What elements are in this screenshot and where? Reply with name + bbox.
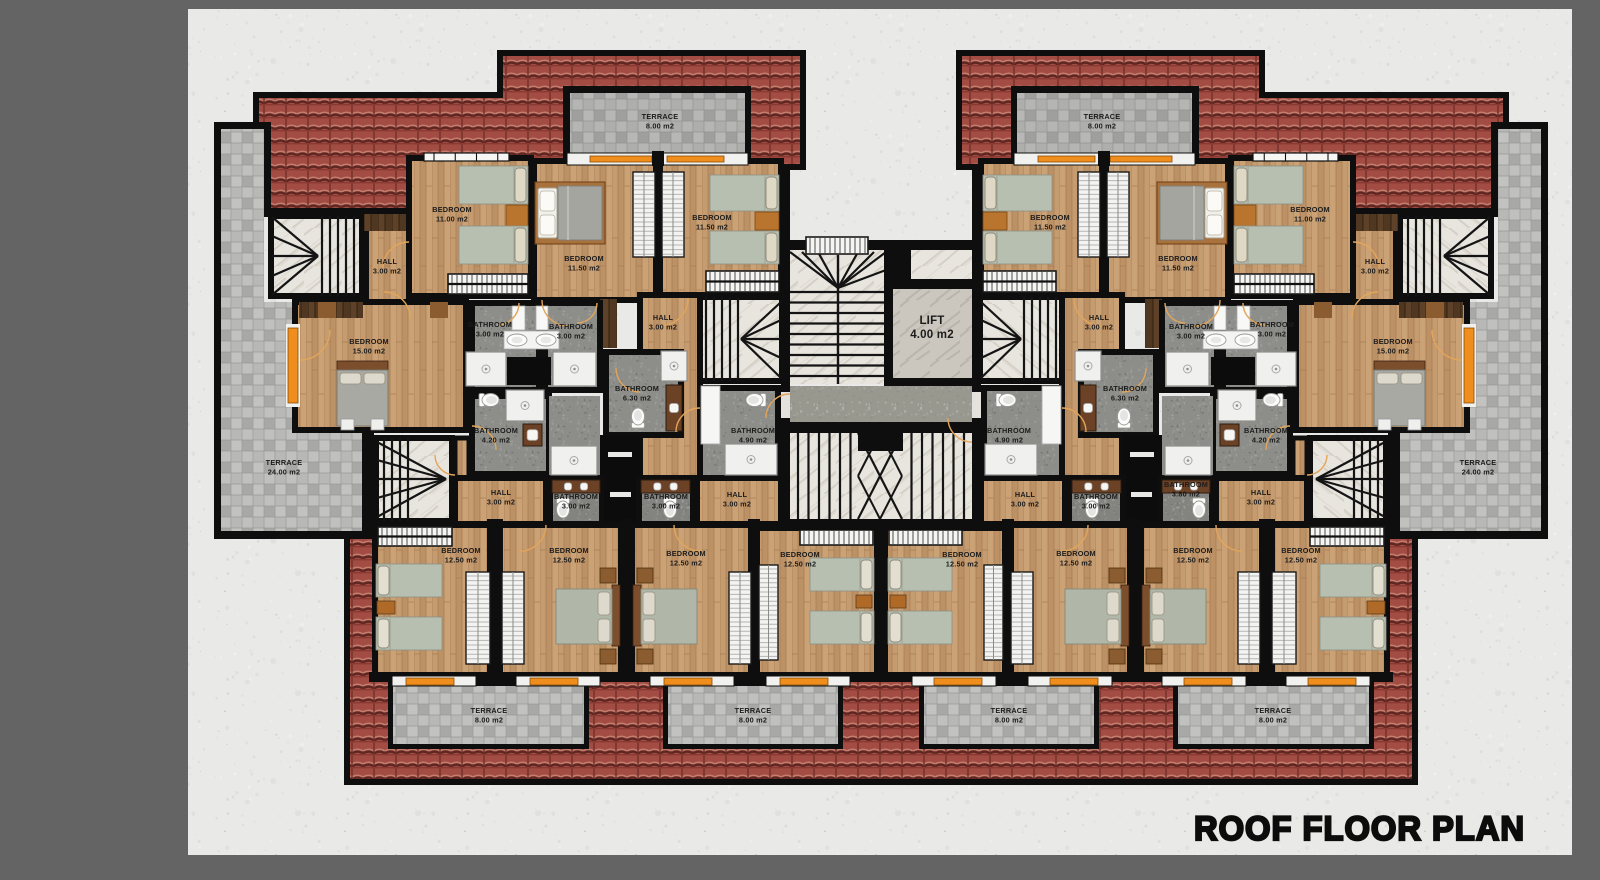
svg-text:HALL: HALL — [1251, 488, 1272, 497]
svg-text:12.50 m2: 12.50 m2 — [946, 560, 978, 569]
svg-text:TERRACE: TERRACE — [642, 112, 679, 121]
svg-text:HALL: HALL — [1015, 490, 1036, 499]
svg-text:ROOF FLOOR PLAN: ROOF FLOOR PLAN — [1194, 810, 1525, 848]
svg-text:BEDROOM: BEDROOM — [1373, 337, 1413, 346]
svg-text:3.00 m2: 3.00 m2 — [1247, 498, 1275, 507]
svg-text:TERRACE: TERRACE — [266, 458, 303, 467]
svg-text:15.00 m2: 15.00 m2 — [1377, 347, 1409, 356]
svg-text:BEDROOM: BEDROOM — [1030, 213, 1070, 222]
svg-text:3.00 m2: 3.00 m2 — [1361, 267, 1389, 276]
svg-text:TERRACE: TERRACE — [1255, 706, 1292, 715]
svg-text:3.00 m2: 3.00 m2 — [1011, 500, 1039, 509]
svg-text:BATHROOM: BATHROOM — [987, 426, 1031, 435]
svg-text:12.50 m2: 12.50 m2 — [1285, 556, 1317, 565]
svg-text:BATHROOM: BATHROOM — [1074, 492, 1118, 501]
svg-text:4.90 m2: 4.90 m2 — [995, 436, 1023, 445]
svg-text:HALL: HALL — [1089, 313, 1110, 322]
svg-text:11.50 m2: 11.50 m2 — [568, 264, 600, 273]
svg-text:11.00 m2: 11.00 m2 — [1294, 215, 1326, 224]
svg-text:BEDROOM: BEDROOM — [564, 254, 604, 263]
svg-text:HALL: HALL — [491, 488, 512, 497]
svg-text:BATHROOM: BATHROOM — [1164, 480, 1208, 489]
svg-text:BEDROOM: BEDROOM — [349, 337, 389, 346]
svg-text:8.00 m2: 8.00 m2 — [475, 716, 503, 725]
svg-text:11.50 m2: 11.50 m2 — [696, 223, 728, 232]
svg-text:6.30 m2: 6.30 m2 — [623, 394, 651, 403]
svg-text:3.00 m2: 3.00 m2 — [723, 500, 751, 509]
svg-text:BEDROOM: BEDROOM — [666, 549, 706, 558]
svg-text:12.50 m2: 12.50 m2 — [784, 560, 816, 569]
svg-text:8.00 m2: 8.00 m2 — [995, 716, 1023, 725]
svg-text:LIFT: LIFT — [919, 315, 944, 327]
svg-text:TERRACE: TERRACE — [1460, 458, 1497, 467]
svg-text:TERRACE: TERRACE — [991, 706, 1028, 715]
svg-text:BATHROOM: BATHROOM — [615, 384, 659, 393]
svg-text:15.00 m2: 15.00 m2 — [353, 347, 385, 356]
svg-text:3.00 m2: 3.00 m2 — [562, 502, 590, 511]
svg-text:3.00 m2: 3.00 m2 — [1177, 332, 1205, 341]
svg-text:4.00 m2: 4.00 m2 — [910, 329, 954, 341]
svg-text:BATHROOM: BATHROOM — [1250, 320, 1294, 329]
svg-text:BEDROOM: BEDROOM — [780, 550, 820, 559]
svg-text:8.00 m2: 8.00 m2 — [646, 122, 674, 131]
svg-text:4.20 m2: 4.20 m2 — [482, 436, 510, 445]
svg-text:8.00 m2: 8.00 m2 — [1259, 716, 1287, 725]
svg-text:BEDROOM: BEDROOM — [942, 550, 982, 559]
svg-text:3.00 m2: 3.00 m2 — [476, 330, 504, 339]
svg-text:BEDROOM: BEDROOM — [549, 546, 589, 555]
svg-text:BEDROOM: BEDROOM — [1290, 205, 1330, 214]
svg-text:3.80 m2: 3.80 m2 — [1172, 490, 1200, 499]
svg-text:11.50 m2: 11.50 m2 — [1034, 223, 1066, 232]
svg-text:BEDROOM: BEDROOM — [1158, 254, 1198, 263]
svg-text:3.00 m2: 3.00 m2 — [373, 267, 401, 276]
svg-text:3.00 m2: 3.00 m2 — [1085, 323, 1113, 332]
svg-text:8.00 m2: 8.00 m2 — [739, 716, 767, 725]
svg-text:11.50 m2: 11.50 m2 — [1162, 264, 1194, 273]
svg-text:BATHROOM: BATHROOM — [554, 492, 598, 501]
svg-text:BATHROOM: BATHROOM — [1244, 426, 1288, 435]
svg-text:BATHROOM: BATHROOM — [549, 322, 593, 331]
svg-text:12.50 m2: 12.50 m2 — [1177, 556, 1209, 565]
svg-text:BATHROOM: BATHROOM — [1103, 384, 1147, 393]
svg-text:HALL: HALL — [727, 490, 748, 499]
svg-text:TERRACE: TERRACE — [735, 706, 772, 715]
svg-text:TERRACE: TERRACE — [1084, 112, 1121, 121]
svg-text:TERRACE: TERRACE — [471, 706, 508, 715]
svg-text:BATHROOM: BATHROOM — [474, 426, 518, 435]
svg-text:BATHROOM: BATHROOM — [644, 492, 688, 501]
svg-text:BEDROOM: BEDROOM — [1173, 546, 1213, 555]
svg-text:3.00 m2: 3.00 m2 — [652, 502, 680, 511]
svg-text:BATHROOM: BATHROOM — [1169, 322, 1213, 331]
svg-text:BEDROOM: BEDROOM — [441, 546, 481, 555]
svg-text:3.00 m2: 3.00 m2 — [487, 498, 515, 507]
svg-text:3.00 m2: 3.00 m2 — [1082, 502, 1110, 511]
svg-text:11.00 m2: 11.00 m2 — [436, 215, 468, 224]
svg-text:12.50 m2: 12.50 m2 — [553, 556, 585, 565]
svg-text:3.00 m2: 3.00 m2 — [1258, 330, 1286, 339]
svg-text:24.00 m2: 24.00 m2 — [268, 468, 300, 477]
svg-text:6.30 m2: 6.30 m2 — [1111, 394, 1139, 403]
svg-text:BATHROOM: BATHROOM — [731, 426, 775, 435]
svg-text:4.20 m2: 4.20 m2 — [1252, 436, 1280, 445]
svg-text:8.00 m2: 8.00 m2 — [1088, 122, 1116, 131]
svg-text:HALL: HALL — [1365, 257, 1386, 266]
svg-text:BATHROOM: BATHROOM — [468, 320, 512, 329]
svg-text:BEDROOM: BEDROOM — [432, 205, 472, 214]
svg-text:BEDROOM: BEDROOM — [692, 213, 732, 222]
svg-text:24.00 m2: 24.00 m2 — [1462, 468, 1494, 477]
svg-text:4.90 m2: 4.90 m2 — [739, 436, 767, 445]
svg-text:12.50 m2: 12.50 m2 — [670, 559, 702, 568]
svg-text:BEDROOM: BEDROOM — [1281, 546, 1321, 555]
svg-text:BEDROOM: BEDROOM — [1056, 549, 1096, 558]
svg-text:3.00 m2: 3.00 m2 — [557, 332, 585, 341]
svg-text:HALL: HALL — [653, 313, 674, 322]
svg-text:12.50 m2: 12.50 m2 — [445, 556, 477, 565]
svg-text:12.50 m2: 12.50 m2 — [1060, 559, 1092, 568]
svg-text:HALL: HALL — [377, 257, 398, 266]
svg-text:3.00 m2: 3.00 m2 — [649, 323, 677, 332]
